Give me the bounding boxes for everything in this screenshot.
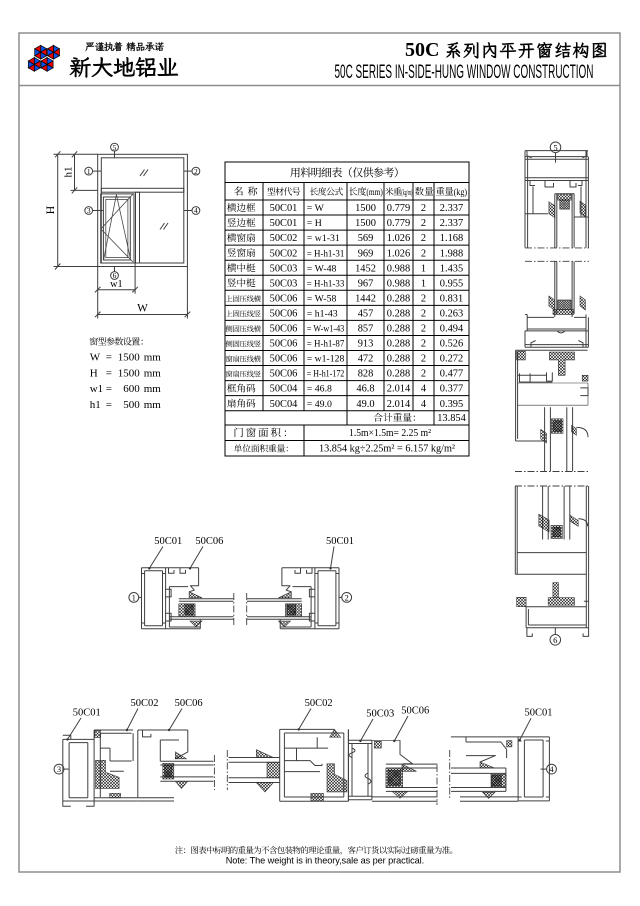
svg-text:= 46.8: = 46.8: [307, 384, 332, 395]
svg-text:50C02: 50C02: [270, 248, 298, 259]
svg-text:= H-h1-31: = H-h1-31: [307, 248, 345, 259]
svg-text:2.014: 2.014: [387, 384, 411, 395]
svg-text:2: 2: [421, 324, 426, 335]
svg-text:2: 2: [421, 203, 426, 214]
svg-text:569: 569: [358, 233, 374, 244]
svg-text:1: 1: [421, 263, 426, 274]
svg-text:0.288: 0.288: [387, 293, 410, 304]
svg-text:= W-58: = W-58: [307, 293, 337, 304]
svg-text:50C06: 50C06: [270, 293, 298, 304]
svg-text:= W-48: = W-48: [307, 263, 337, 274]
svg-text:1: 1: [132, 593, 136, 602]
svg-text:w1: w1: [90, 383, 103, 395]
svg-text:1.5m×1.5m= 2.25 m²: 1.5m×1.5m= 2.25 m²: [349, 427, 431, 439]
svg-text:=: =: [106, 352, 112, 364]
svg-text:= 49.0: = 49.0: [307, 399, 332, 410]
svg-text:1500: 1500: [355, 203, 376, 214]
svg-text:500: 500: [123, 399, 140, 411]
svg-text:=: =: [106, 383, 112, 395]
svg-text:h1: h1: [90, 399, 101, 411]
svg-text:0.988: 0.988: [387, 278, 410, 289]
svg-text:1452: 1452: [355, 263, 376, 274]
svg-text:828: 828: [358, 369, 374, 380]
svg-text:= W-w1-43: = W-w1-43: [307, 324, 345, 335]
svg-text:(kg): (kg): [454, 187, 468, 197]
svg-text:50C01: 50C01: [326, 536, 354, 547]
svg-text:w1: w1: [110, 279, 122, 290]
svg-text:969: 969: [358, 248, 374, 259]
svg-text:mm: mm: [144, 383, 162, 395]
svg-text:0.494: 0.494: [440, 324, 464, 335]
svg-text:857: 857: [358, 324, 374, 335]
svg-text:0.288: 0.288: [387, 369, 410, 380]
svg-text:49.0: 49.0: [356, 399, 374, 410]
svg-text:(mm): (mm): [366, 187, 382, 197]
svg-text:967: 967: [358, 278, 374, 289]
svg-text:50C01: 50C01: [154, 536, 182, 547]
svg-text:50C02: 50C02: [305, 698, 333, 709]
svg-text:46.8: 46.8: [356, 384, 374, 395]
svg-text:13.854: 13.854: [437, 413, 466, 424]
svg-text:50C06: 50C06: [270, 339, 298, 350]
svg-text:= W: = W: [307, 203, 325, 214]
svg-text:0.988: 0.988: [387, 263, 410, 274]
svg-text:4: 4: [421, 384, 427, 395]
svg-text:= H-h1-172: = H-h1-172: [307, 369, 345, 380]
svg-text:2.014: 2.014: [387, 399, 411, 410]
svg-text:0.288: 0.288: [387, 308, 410, 319]
svg-text:2: 2: [421, 308, 426, 319]
svg-text:1.168: 1.168: [440, 233, 463, 244]
svg-text:= h1-43: = h1-43: [307, 308, 338, 319]
svg-text:=: =: [106, 367, 112, 379]
svg-text:50C: 50C: [405, 39, 439, 61]
svg-text:50C01: 50C01: [270, 218, 298, 229]
svg-text:H: H: [43, 205, 57, 214]
svg-text:0.395: 0.395: [440, 399, 463, 410]
svg-text:0.477: 0.477: [440, 369, 463, 380]
svg-text:13.854 kg÷2.25m² = 6.157 kg/m²: 13.854 kg÷2.25m² = 6.157 kg/m²: [319, 442, 455, 454]
svg-text:50C02: 50C02: [270, 233, 298, 244]
svg-text:Note: The weight is in theory,: Note: The weight is in theory,sale as pe…: [226, 856, 425, 866]
svg-text:50C06: 50C06: [195, 536, 223, 547]
svg-text:= w1-128: = w1-128: [307, 354, 345, 365]
svg-text:3: 3: [57, 765, 61, 774]
svg-text:5: 5: [113, 143, 117, 152]
svg-text:6: 6: [113, 271, 117, 280]
svg-text:50C06: 50C06: [270, 308, 298, 319]
svg-text:457: 457: [358, 308, 374, 319]
svg-text:1500: 1500: [355, 218, 376, 229]
svg-text:1: 1: [87, 167, 91, 176]
svg-text:600: 600: [123, 383, 140, 395]
svg-text:= w1-31: = w1-31: [307, 233, 340, 244]
svg-text:2: 2: [421, 369, 426, 380]
svg-text:50C01: 50C01: [73, 707, 101, 718]
svg-text:0.779: 0.779: [387, 218, 410, 229]
svg-text:4: 4: [421, 399, 427, 410]
svg-text:0.272: 0.272: [440, 354, 463, 365]
svg-text:50C02: 50C02: [130, 698, 158, 709]
svg-text:0.526: 0.526: [440, 339, 463, 350]
svg-text:1500: 1500: [118, 352, 141, 364]
svg-text:= H-h1-87: = H-h1-87: [307, 339, 345, 350]
svg-text:1442: 1442: [355, 293, 376, 304]
svg-text:0.288: 0.288: [387, 354, 410, 365]
svg-text:2: 2: [421, 218, 426, 229]
svg-text:W: W: [90, 352, 101, 364]
svg-text:50C01: 50C01: [270, 203, 298, 214]
svg-text:4: 4: [194, 206, 198, 215]
svg-text:50C03: 50C03: [366, 709, 394, 720]
svg-text:=: =: [106, 399, 112, 411]
svg-text:0.288: 0.288: [387, 339, 410, 350]
svg-text:= H: = H: [307, 218, 322, 229]
svg-text:3: 3: [87, 206, 91, 215]
svg-text:50C01: 50C01: [524, 708, 552, 719]
svg-text:6: 6: [553, 635, 558, 645]
svg-text:1.435: 1.435: [440, 263, 463, 274]
svg-text:2: 2: [421, 339, 426, 350]
svg-text:1.026: 1.026: [387, 248, 410, 259]
svg-text:H: H: [90, 367, 98, 379]
svg-text:5: 5: [553, 142, 557, 152]
svg-text:2.337: 2.337: [440, 203, 463, 214]
svg-text:1500: 1500: [118, 367, 141, 379]
svg-text:2: 2: [421, 233, 426, 244]
svg-text:0.831: 0.831: [440, 293, 463, 304]
svg-text:0.288: 0.288: [387, 324, 410, 335]
svg-text:2: 2: [345, 593, 349, 602]
svg-text:mm: mm: [144, 399, 162, 411]
svg-text:1: 1: [421, 278, 426, 289]
svg-text:h1: h1: [62, 167, 74, 178]
svg-text:0.263: 0.263: [440, 308, 463, 319]
svg-text:50C06: 50C06: [270, 354, 298, 365]
svg-text:50C06: 50C06: [401, 706, 429, 717]
svg-text:4: 4: [549, 765, 553, 774]
svg-text:2: 2: [194, 167, 198, 176]
svg-text:mm: mm: [144, 367, 162, 379]
svg-text:1.988: 1.988: [440, 248, 463, 259]
svg-text:50C03: 50C03: [270, 278, 298, 289]
svg-text:2: 2: [421, 248, 426, 259]
svg-text:50C06: 50C06: [175, 698, 203, 709]
svg-text:1.026: 1.026: [387, 233, 410, 244]
svg-text:(kg/m): (kg/m): [401, 188, 412, 197]
svg-text:2: 2: [421, 354, 426, 365]
svg-text:50C03: 50C03: [270, 263, 298, 274]
svg-text:50C06: 50C06: [270, 369, 298, 380]
svg-text:913: 913: [358, 339, 374, 350]
svg-text:2.337: 2.337: [440, 218, 463, 229]
svg-text:0.955: 0.955: [440, 278, 463, 289]
svg-text:W: W: [137, 303, 148, 315]
svg-text:0.779: 0.779: [387, 203, 410, 214]
svg-text:50C04: 50C04: [270, 384, 299, 395]
svg-text:50C06: 50C06: [270, 324, 298, 335]
svg-text:472: 472: [358, 354, 374, 365]
svg-text:= H-h1-33: = H-h1-33: [307, 278, 345, 289]
svg-text:0.377: 0.377: [440, 384, 463, 395]
svg-text:2: 2: [421, 293, 426, 304]
svg-text:mm: mm: [144, 352, 162, 364]
svg-text:50C SERIES IN-SIDE-HUNG WINDOW: 50C SERIES IN-SIDE-HUNG WINDOW CONSTRUCT…: [335, 62, 594, 83]
svg-text:50C04: 50C04: [270, 399, 299, 410]
